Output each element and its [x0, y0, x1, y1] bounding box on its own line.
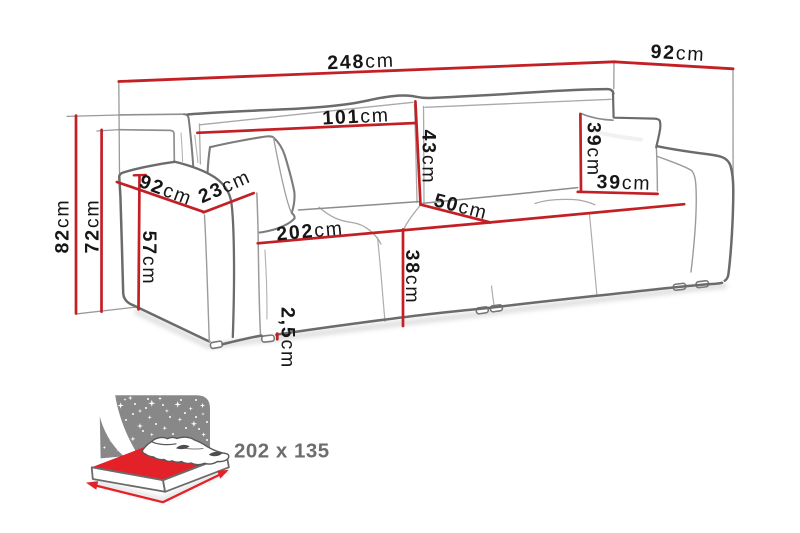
svg-text:101cm: 101cm	[322, 104, 390, 129]
svg-text:248cm: 248cm	[327, 50, 395, 75]
svg-text:72cm: 72cm	[81, 199, 103, 254]
svg-text:39cm: 39cm	[583, 122, 605, 177]
svg-text:38cm: 38cm	[401, 250, 423, 305]
svg-text:202 x 135: 202 x 135	[234, 440, 330, 463]
svg-text:92cm: 92cm	[650, 41, 706, 66]
svg-text:2,5cm: 2,5cm	[277, 307, 299, 369]
svg-text:82cm: 82cm	[51, 199, 73, 254]
svg-text:43cm: 43cm	[418, 130, 440, 185]
svg-text:57cm: 57cm	[138, 231, 160, 286]
svg-text:39cm: 39cm	[596, 171, 652, 195]
